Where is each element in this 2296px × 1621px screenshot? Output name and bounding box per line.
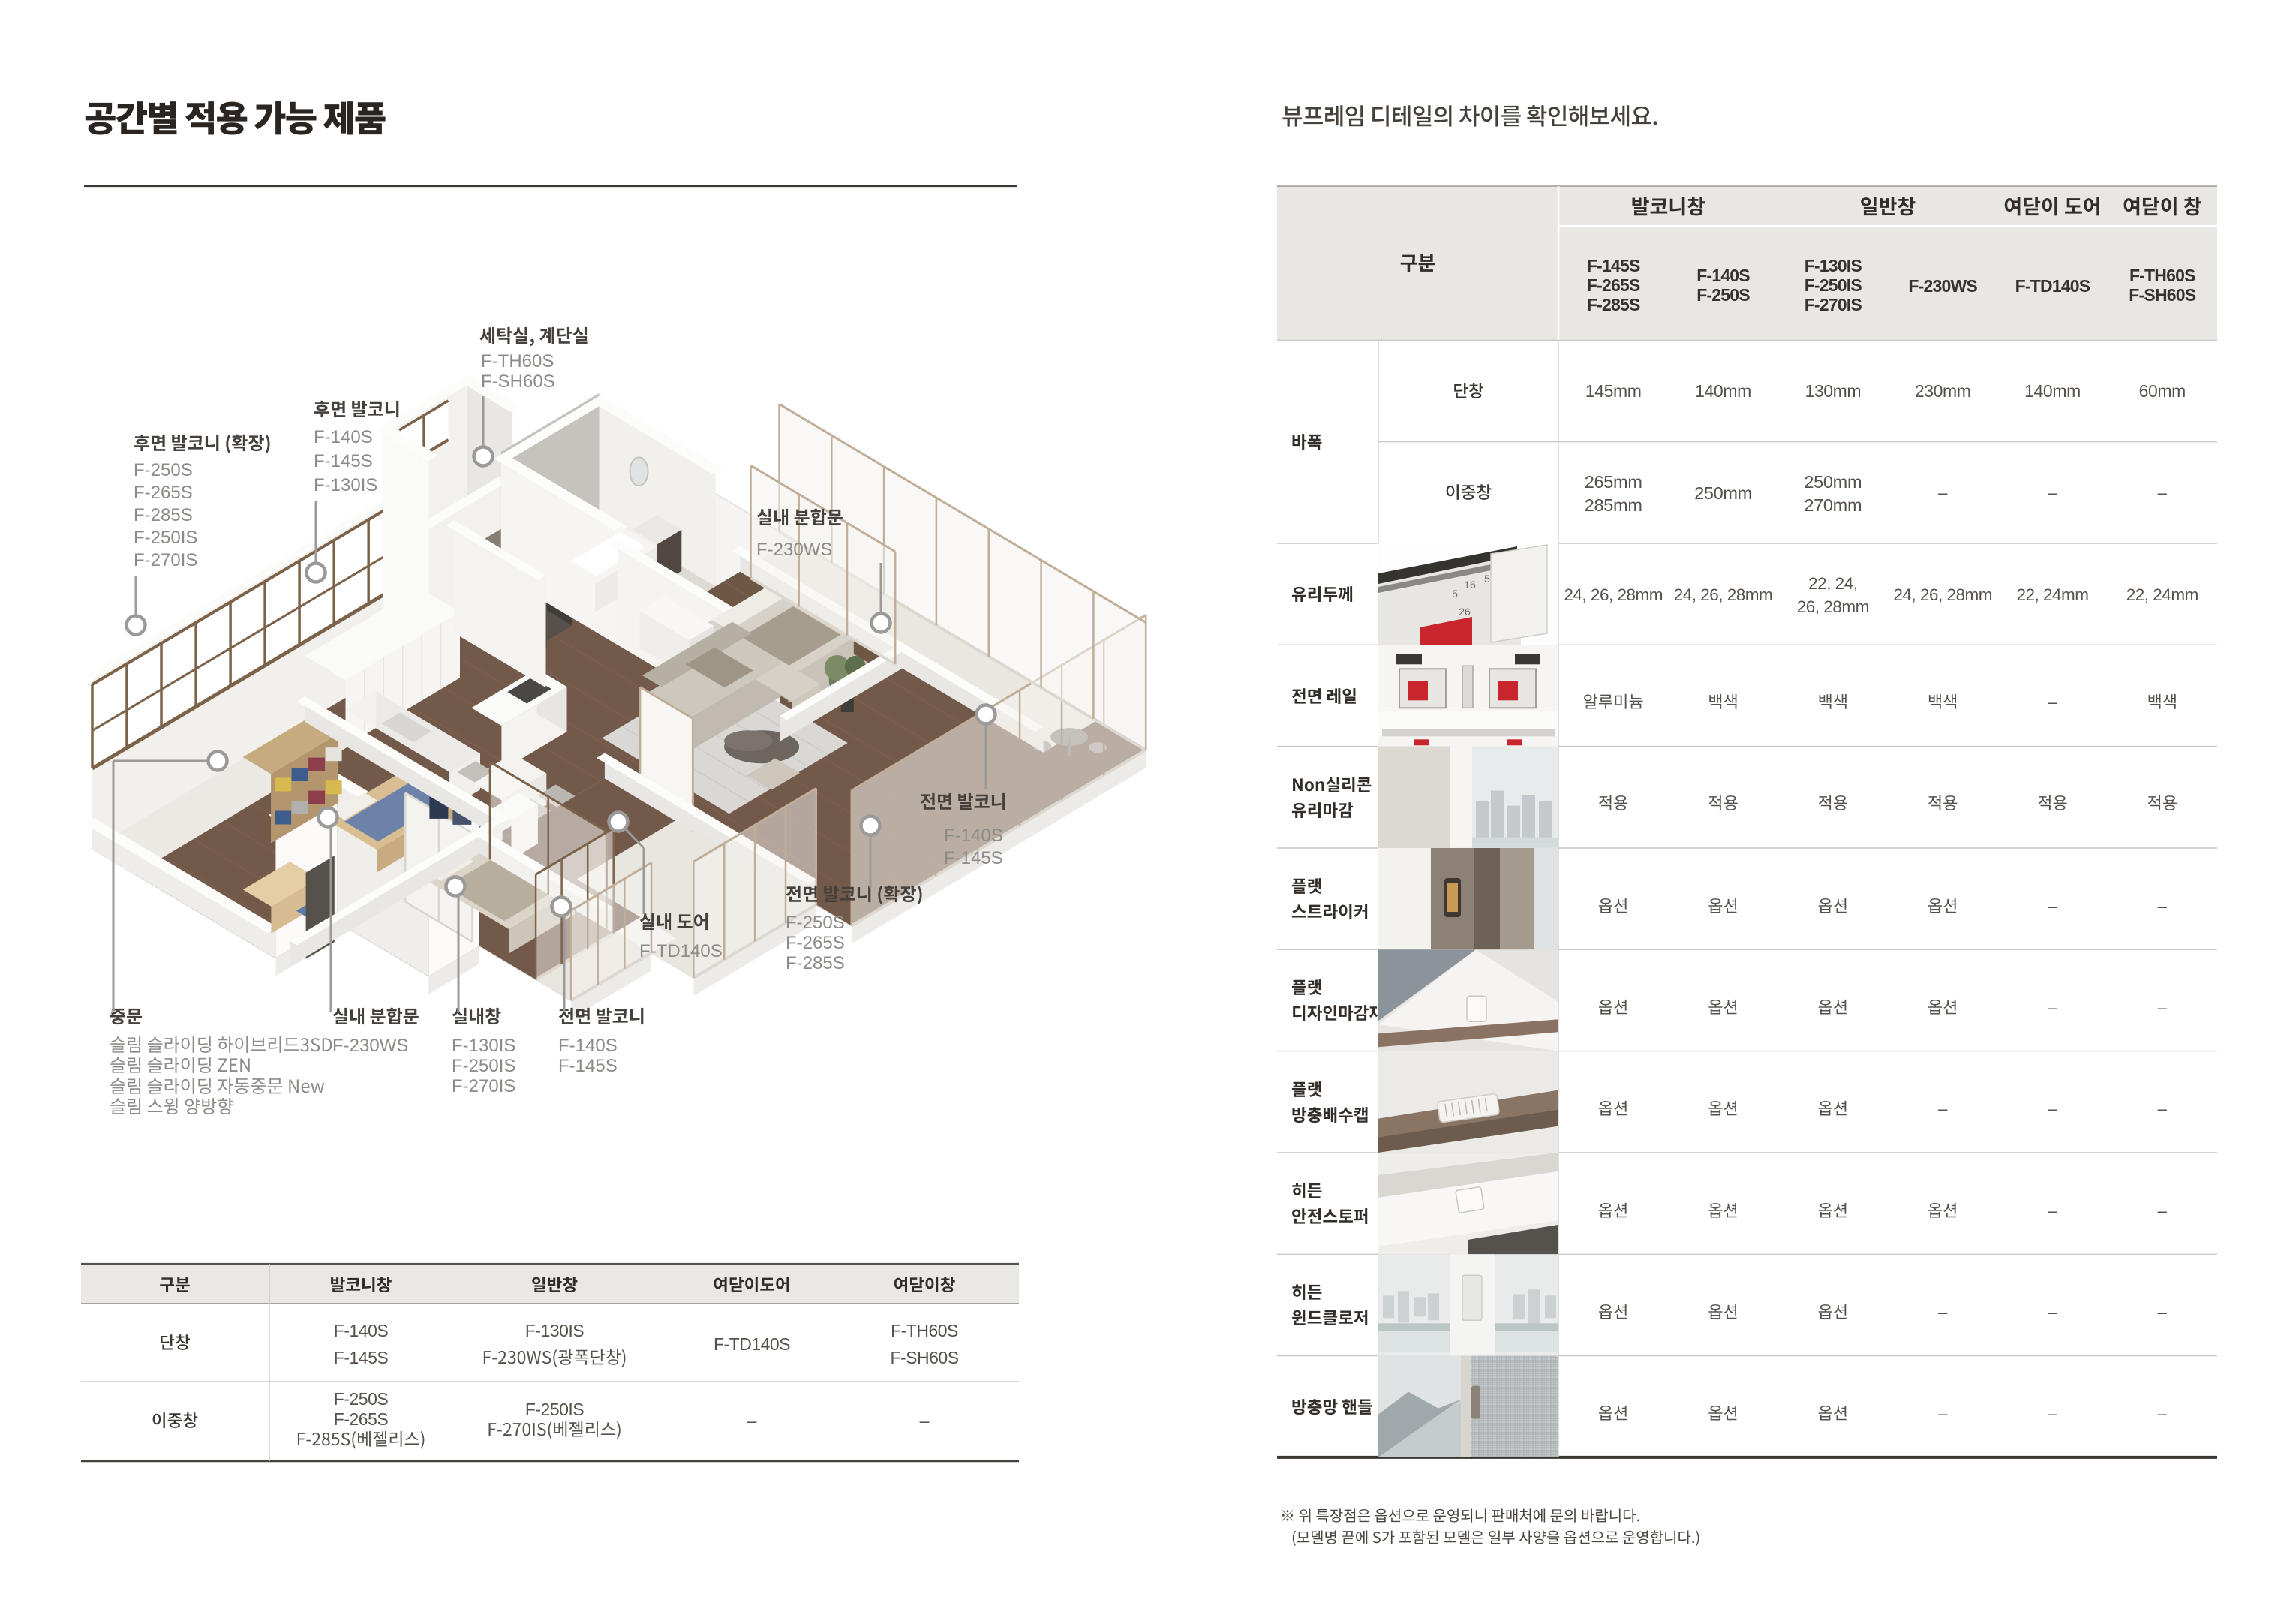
- svg-text:F-140S: F-140S: [944, 826, 1003, 846]
- svg-text:F-265S: F-265S: [786, 933, 845, 953]
- svg-text:24, 26, 28mm: 24, 26, 28mm: [1893, 585, 1992, 604]
- svg-text:130mm: 130mm: [1805, 381, 1861, 401]
- svg-text:F-145S: F-145S: [334, 1348, 389, 1367]
- svg-text:–: –: [1938, 1404, 1948, 1423]
- svg-text:F-TH60S: F-TH60S: [891, 1321, 958, 1340]
- svg-text:F-140S: F-140S: [558, 1036, 618, 1056]
- svg-text:F-130IS: F-130IS: [452, 1036, 515, 1056]
- svg-text:F-TD140S: F-TD140S: [639, 941, 723, 961]
- svg-text:F-SH60S: F-SH60S: [890, 1348, 958, 1367]
- svg-text:140mm: 140mm: [1695, 381, 1751, 401]
- svg-text:24, 26, 28mm: 24, 26, 28mm: [1564, 585, 1663, 604]
- svg-text:–: –: [2158, 998, 2168, 1017]
- svg-text:F-130IS: F-130IS: [314, 475, 377, 495]
- svg-text:F-270IS: F-270IS: [134, 550, 197, 570]
- svg-text:22, 24mm: 22, 24mm: [2016, 585, 2088, 604]
- svg-text:22, 24mm: 22, 24mm: [2126, 585, 2198, 604]
- svg-text:F-145S: F-145S: [314, 451, 373, 471]
- svg-text:F-285S: F-285S: [134, 505, 193, 525]
- svg-text:F-270IS: F-270IS: [452, 1076, 515, 1096]
- svg-text:F-250S: F-250S: [134, 460, 193, 480]
- svg-text:–: –: [2048, 1303, 2057, 1322]
- svg-text:–: –: [2158, 1303, 2168, 1322]
- svg-text:24, 26, 28mm: 24, 26, 28mm: [1674, 585, 1773, 604]
- svg-text:F-250IS: F-250IS: [525, 1400, 584, 1419]
- svg-text:F-265S: F-265S: [334, 1409, 389, 1429]
- svg-text:265mm: 265mm: [1585, 472, 1642, 492]
- svg-text:–: –: [2048, 693, 2057, 711]
- svg-text:F-TH60S: F-TH60S: [2129, 266, 2195, 285]
- svg-text:F-TH60S: F-TH60S: [481, 351, 554, 371]
- svg-text:F-230WS: F-230WS: [332, 1036, 408, 1056]
- svg-text:F-SH60S: F-SH60S: [2129, 285, 2195, 305]
- svg-text:F-285S: F-285S: [786, 953, 845, 973]
- svg-text:F-140S: F-140S: [314, 427, 373, 447]
- svg-text:60mm: 60mm: [2139, 381, 2186, 401]
- svg-text:F-230WS: F-230WS: [756, 540, 832, 560]
- svg-text:250mm: 250mm: [1694, 483, 1752, 503]
- svg-text:26: 26: [1459, 606, 1471, 618]
- svg-text:–: –: [2048, 1099, 2057, 1118]
- svg-text:22, 24,: 22, 24,: [1808, 574, 1857, 593]
- svg-text:F-TD140S: F-TD140S: [714, 1334, 790, 1354]
- svg-text:F-285S: F-285S: [1587, 295, 1640, 314]
- svg-text:–: –: [1938, 1099, 1948, 1118]
- svg-text:F-250S: F-250S: [1696, 285, 1750, 305]
- svg-text:F-230WS: F-230WS: [1908, 276, 1977, 296]
- svg-text:5: 5: [1452, 588, 1458, 600]
- svg-text:F-265S: F-265S: [1587, 275, 1640, 295]
- svg-text:F-250S: F-250S: [786, 913, 845, 933]
- svg-text:–: –: [920, 1411, 930, 1430]
- svg-text:270mm: 270mm: [1804, 495, 1862, 515]
- svg-text:–: –: [1938, 1303, 1948, 1322]
- svg-text:250mm: 250mm: [1804, 472, 1862, 492]
- svg-text:–: –: [2158, 897, 2168, 916]
- svg-text:–: –: [2048, 897, 2057, 916]
- svg-text:F-250IS: F-250IS: [452, 1056, 515, 1076]
- svg-text:–: –: [2048, 483, 2057, 502]
- svg-text:–: –: [2158, 1404, 2168, 1423]
- svg-text:230mm: 230mm: [1915, 381, 1971, 401]
- svg-text:145mm: 145mm: [1585, 381, 1642, 401]
- svg-text:–: –: [747, 1411, 757, 1430]
- svg-text:F-145S: F-145S: [944, 848, 1003, 868]
- svg-text:F-250S: F-250S: [334, 1389, 389, 1409]
- svg-text:F-SH60S: F-SH60S: [481, 371, 555, 392]
- svg-text:F-250IS: F-250IS: [1805, 275, 1862, 295]
- svg-text:–: –: [2158, 1201, 2168, 1220]
- svg-text:F-270IS: F-270IS: [1805, 295, 1862, 314]
- svg-text:F-140S: F-140S: [334, 1321, 389, 1340]
- svg-text:–: –: [2158, 1099, 2168, 1118]
- svg-text:–: –: [2048, 1404, 2057, 1423]
- svg-text:285mm: 285mm: [1585, 495, 1642, 515]
- svg-text:–: –: [2158, 483, 2168, 502]
- svg-text:F-TD140S: F-TD140S: [2015, 276, 2090, 296]
- svg-text:–: –: [1938, 483, 1948, 502]
- svg-text:F-265S: F-265S: [134, 483, 193, 503]
- svg-text:–: –: [2048, 1201, 2057, 1220]
- svg-text:5: 5: [1484, 573, 1490, 585]
- svg-text:16: 16: [1464, 579, 1476, 591]
- svg-text:26, 28mm: 26, 28mm: [1797, 597, 1869, 616]
- svg-text:–: –: [2048, 998, 2057, 1017]
- svg-text:F-145S: F-145S: [558, 1056, 618, 1076]
- svg-text:F-145S: F-145S: [1587, 256, 1640, 275]
- svg-text:140mm: 140mm: [2024, 381, 2081, 401]
- svg-text:F-250IS: F-250IS: [134, 528, 197, 548]
- svg-text:F-130IS: F-130IS: [525, 1321, 584, 1340]
- svg-text:F-140S: F-140S: [1696, 266, 1750, 285]
- svg-text:F-130IS: F-130IS: [1805, 256, 1862, 275]
